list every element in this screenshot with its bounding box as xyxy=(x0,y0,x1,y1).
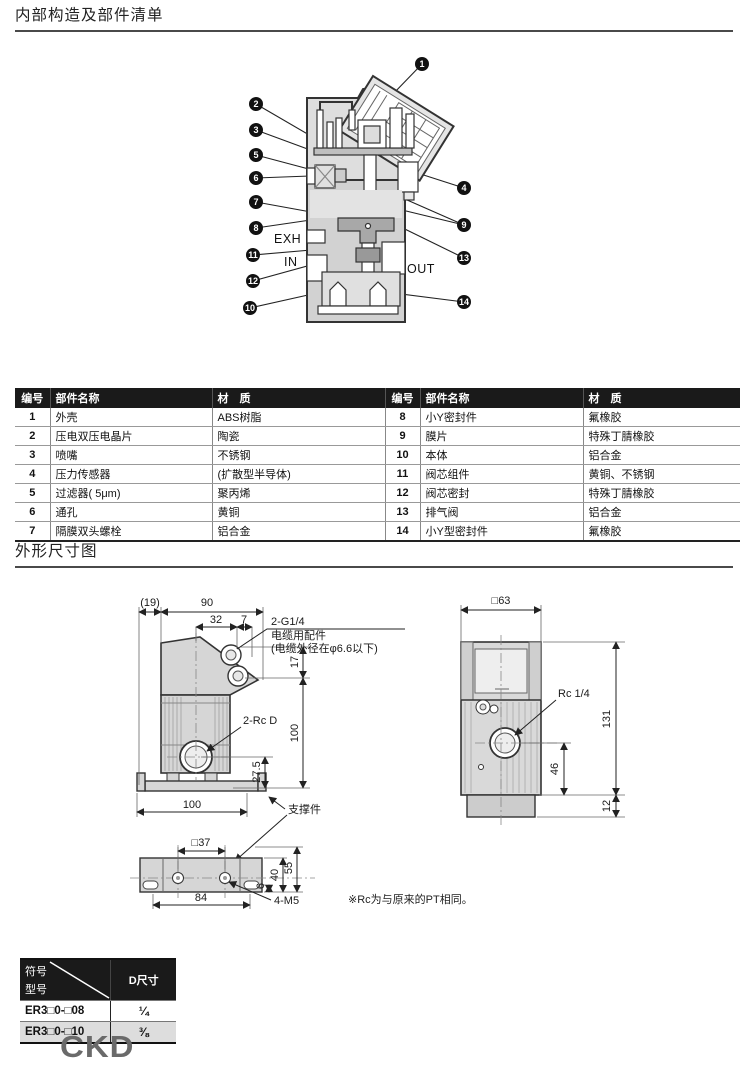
part-name: 压力传感器 xyxy=(50,465,212,484)
dim-100-h: 100 xyxy=(183,799,201,811)
section-title-internal-structure: 内部构造及部件清单 xyxy=(15,3,733,32)
col-header-name: 部件名称 xyxy=(50,388,212,408)
dim-40: 40 xyxy=(269,869,281,881)
label-bracket: 支撑件 xyxy=(288,802,321,816)
part-name: 外壳 xyxy=(50,408,212,427)
dim-84: 84 xyxy=(195,892,207,904)
d-size-header: D尺寸 xyxy=(111,960,176,1000)
dim-46: 46 xyxy=(549,763,561,775)
part-no: 1 xyxy=(15,408,50,427)
dim-100-v: 100 xyxy=(289,724,301,742)
col-header-no: 编号 xyxy=(15,388,50,408)
dim-12: 12 xyxy=(601,800,613,812)
bottom-view: □37 84 4-M5 6 40 55 xyxy=(130,837,315,909)
dim-55: 55 xyxy=(283,862,295,874)
part-name: 喷嘴 xyxy=(50,446,212,465)
front-view: (19) 90 32 7 2-G1/4 电缆用配件 (电缆外径在φ6.6以下) … xyxy=(137,597,405,861)
part-material: 黄铜 xyxy=(212,503,385,522)
parts-table-header-row: 编号 部件名称 材 质 编号 部件名称 材 质 xyxy=(15,388,740,408)
part-material: 不锈钢 xyxy=(212,446,385,465)
part-name: 排气阀 xyxy=(420,503,583,522)
dim-63: □63 xyxy=(492,595,511,607)
callout-10: 10 xyxy=(243,301,257,315)
part-material: 铝合金 xyxy=(583,446,740,465)
part-no: 9 xyxy=(385,427,420,446)
side-view: □63 Rc 1/4 131 46 12 xyxy=(461,595,625,825)
dim-19: (19) xyxy=(140,597,160,609)
exh-port-label: EXH xyxy=(274,232,301,246)
model-table-row: ER3□0-□08 ¼ xyxy=(20,1000,176,1021)
label-4-m5: 4-M5 xyxy=(274,895,299,907)
part-no: 11 xyxy=(385,465,420,484)
dim-27-5: 27.5 xyxy=(251,761,263,782)
label-2-g14: 2-G1/4 xyxy=(271,616,305,628)
dim-131: 131 xyxy=(601,710,613,728)
part-no: 13 xyxy=(385,503,420,522)
col-header-material: 材 质 xyxy=(212,388,385,408)
callout-9: 9 xyxy=(457,218,471,232)
part-no: 12 xyxy=(385,484,420,503)
rc-pt-note: ※Rc为与原来的PT相同。 xyxy=(348,891,473,907)
part-name: 膜片 xyxy=(420,427,583,446)
parts-table-row: 3喷嘴不锈钢10本体铝合金 xyxy=(15,446,740,465)
part-material: 聚丙烯 xyxy=(212,484,385,503)
part-name: 小Y密封件 xyxy=(420,408,583,427)
callout-14: 14 xyxy=(457,295,471,309)
datasheet-page: 内部构造及部件清单 xyxy=(0,0,750,1068)
label-cable-fitting: 电缆用配件 xyxy=(271,629,326,642)
parts-table-row: 6通孔黄铜13排气阀铝合金 xyxy=(15,503,740,522)
part-no: 4 xyxy=(15,465,50,484)
callout-4: 4 xyxy=(457,181,471,195)
dim-6: 6 xyxy=(255,883,267,889)
part-no: 2 xyxy=(15,427,50,446)
label-rc-14: Rc 1/4 xyxy=(558,688,590,700)
parts-table-row: 4压力传感器(扩散型半导体)11阀芯组件黄铜、不锈钢 xyxy=(15,465,740,484)
model-table-corner-cell: 符号 型号 xyxy=(20,960,111,1000)
part-no: 6 xyxy=(15,503,50,522)
part-name: 阀芯密封 xyxy=(420,484,583,503)
d-size-value: ¼ xyxy=(111,1001,176,1021)
symbol-header: 符号 xyxy=(25,963,47,979)
part-name: 过滤器( 5μm) xyxy=(50,484,212,503)
parts-table-row: 1外壳ABS树脂8小Y密封件氟橡胶 xyxy=(15,408,740,427)
callout-13: 13 xyxy=(457,251,471,265)
in-port-label: IN xyxy=(284,255,298,269)
callout-3: 3 xyxy=(249,123,263,137)
col-header-name-2: 部件名称 xyxy=(420,388,583,408)
part-no: 8 xyxy=(385,408,420,427)
col-header-no-2: 编号 xyxy=(385,388,420,408)
part-material: ABS树脂 xyxy=(212,408,385,427)
callout-11: 11 xyxy=(246,248,260,262)
parts-list-table: 编号 部件名称 材 质 编号 部件名称 材 质 1外壳ABS树脂8小Y密封件氟橡… xyxy=(15,388,740,542)
dim-32: 32 xyxy=(210,614,222,626)
part-name: 本体 xyxy=(420,446,583,465)
part-no: 3 xyxy=(15,446,50,465)
part-material: 特殊丁腈橡胶 xyxy=(583,427,740,446)
model-header: 型号 xyxy=(25,981,47,997)
section-title-dimensions: 外形尺寸图 xyxy=(15,539,733,568)
part-material: 氟橡胶 xyxy=(583,408,740,427)
col-header-material-2: 材 质 xyxy=(583,388,740,408)
callout-2: 2 xyxy=(249,97,263,111)
part-no: 10 xyxy=(385,446,420,465)
dim-7: 7 xyxy=(241,614,247,626)
callout-6: 6 xyxy=(249,171,263,185)
label-2-rc-d: 2-Rc D xyxy=(243,715,277,727)
label-cable-note: (电缆外径在φ6.6以下) xyxy=(271,642,378,655)
callout-1: 1 xyxy=(415,57,429,71)
callout-5: 5 xyxy=(249,148,263,162)
part-name: 通孔 xyxy=(50,503,212,522)
callout-12: 12 xyxy=(246,274,260,288)
part-name: 压电双压电晶片 xyxy=(50,427,212,446)
ckd-logo: CKD xyxy=(60,1030,135,1065)
part-no: 5 xyxy=(15,484,50,503)
part-name: 阀芯组件 xyxy=(420,465,583,484)
part-material: (扩散型半导体) xyxy=(212,465,385,484)
parts-table-row: 5过滤器( 5μm)聚丙烯12阀芯密封特殊丁腈橡胶 xyxy=(15,484,740,503)
dim-17: 17 xyxy=(289,656,301,668)
part-material: 黄铜、不锈钢 xyxy=(583,465,740,484)
part-material: 陶瓷 xyxy=(212,427,385,446)
model-table-header: 符号 型号 D尺寸 xyxy=(20,960,176,1000)
model-number: ER3□0-□08 xyxy=(20,1001,111,1021)
parts-table-row: 2压电双压电晶片陶瓷9膜片特殊丁腈橡胶 xyxy=(15,427,740,446)
dim-37: □37 xyxy=(192,837,211,849)
out-port-label: OUT xyxy=(407,262,435,276)
dim-90: 90 xyxy=(201,597,213,609)
part-material: 特殊丁腈橡胶 xyxy=(583,484,740,503)
part-material: 铝合金 xyxy=(583,503,740,522)
callout-8: 8 xyxy=(249,221,263,235)
callout-7: 7 xyxy=(249,195,263,209)
valve-cross-section-diagram xyxy=(230,50,490,330)
